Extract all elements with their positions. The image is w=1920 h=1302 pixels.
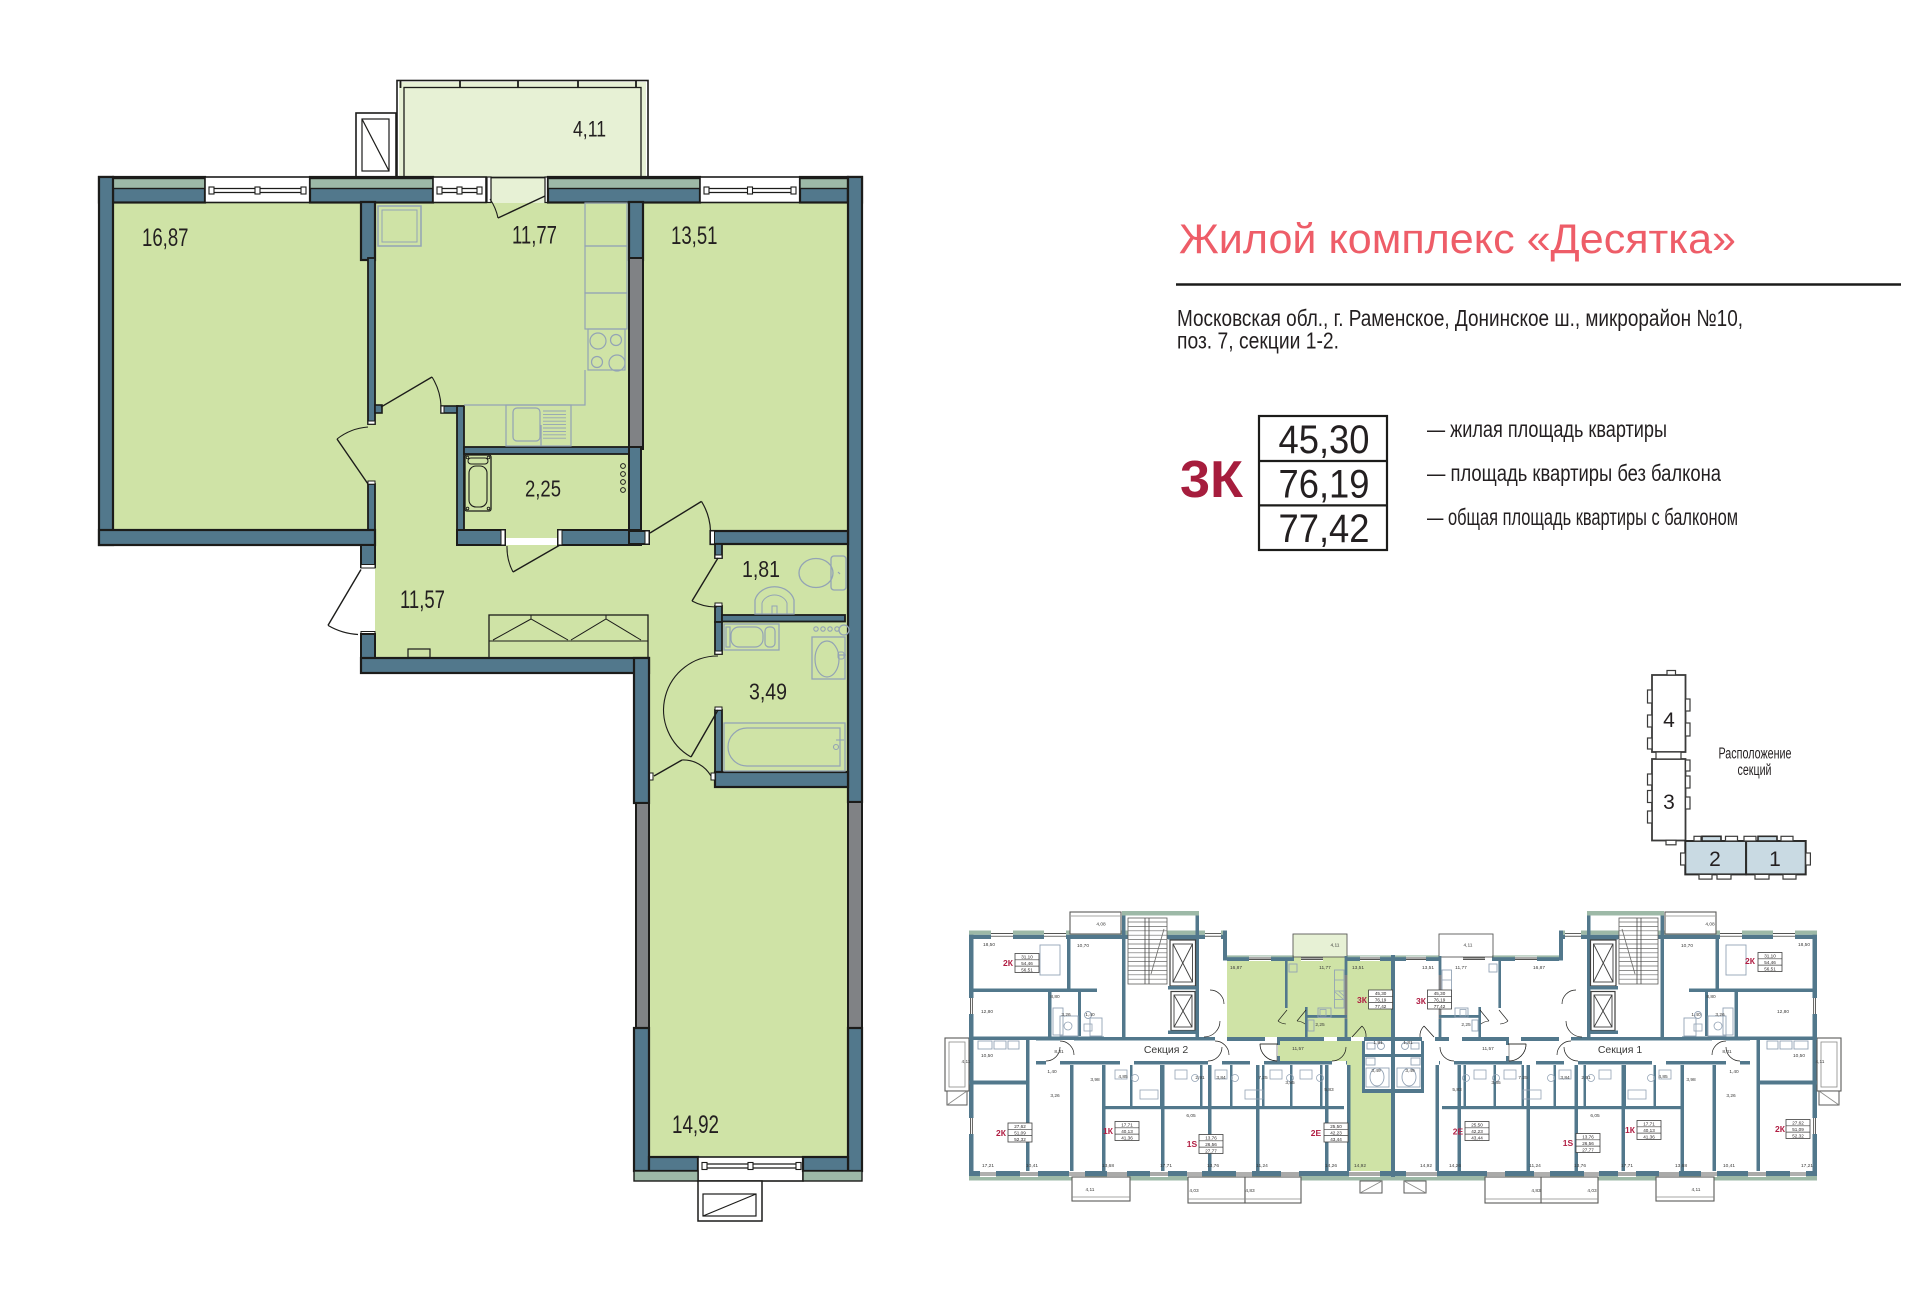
svg-text:52,32: 52,32 <box>1014 1137 1026 1142</box>
svg-text:17,71: 17,71 <box>1121 1123 1133 1128</box>
svg-text:2,25: 2,25 <box>1461 1022 1471 1028</box>
svg-text:31,10: 31,10 <box>1764 954 1776 959</box>
svg-text:17,21: 17,21 <box>982 1163 994 1169</box>
svg-text:45,30: 45,30 <box>1279 418 1370 462</box>
svg-text:1S: 1S <box>1187 1139 1198 1149</box>
svg-text:3,98: 3,98 <box>1090 1077 1100 1083</box>
svg-text:10,50: 10,50 <box>1793 1053 1805 1059</box>
svg-text:10,50: 10,50 <box>981 1053 993 1059</box>
svg-text:3,26: 3,26 <box>1061 1012 1071 1018</box>
svg-text:4,11: 4,11 <box>1331 943 1340 949</box>
svg-text:14,26: 14,26 <box>1325 1163 1337 1169</box>
svg-text:4,03: 4,03 <box>1189 1188 1199 1194</box>
svg-text:11,57: 11,57 <box>400 586 445 614</box>
svg-text:17,71: 17,71 <box>1160 1163 1172 1169</box>
svg-text:45,30: 45,30 <box>1434 991 1446 996</box>
svg-text:3,49: 3,49 <box>1405 1068 1415 1074</box>
svg-text:8,80: 8,80 <box>1706 994 1716 1000</box>
svg-text:4,11: 4,11 <box>1692 1187 1701 1193</box>
svg-text:51,09: 51,09 <box>1014 1131 1026 1136</box>
svg-text:76,19: 76,19 <box>1375 998 1387 1003</box>
svg-text:10,70: 10,70 <box>1077 943 1089 949</box>
svg-text:45,30: 45,30 <box>1375 991 1387 996</box>
svg-text:26,56: 26,56 <box>1205 1142 1217 1147</box>
svg-text:42,23: 42,23 <box>1330 1131 1342 1136</box>
svg-text:77,42: 77,42 <box>1434 1004 1446 1009</box>
svg-text:10,41: 10,41 <box>1723 1163 1735 1169</box>
svg-text:6,05: 6,05 <box>1186 1113 1196 1119</box>
svg-text:11,77: 11,77 <box>1455 965 1467 971</box>
svg-text:8,80: 8,80 <box>1050 994 1060 1000</box>
svg-text:— жилая площадь квартиры: — жилая площадь квартиры <box>1427 416 1667 442</box>
svg-text:1,81: 1,81 <box>742 556 780 582</box>
svg-text:76,19: 76,19 <box>1279 463 1370 507</box>
svg-text:13,76: 13,76 <box>1574 1163 1586 1169</box>
svg-text:27,77: 27,77 <box>1205 1148 1217 1153</box>
svg-text:42,23: 42,23 <box>1471 1129 1483 1134</box>
svg-text:41,36: 41,36 <box>1643 1134 1655 1139</box>
svg-text:3,26: 3,26 <box>1050 1093 1060 1099</box>
svg-text:2,91: 2,91 <box>1581 1075 1591 1081</box>
svg-text:13,76: 13,76 <box>1207 1163 1219 1169</box>
svg-text:14,92: 14,92 <box>1420 1163 1432 1169</box>
svg-text:40,13: 40,13 <box>1643 1128 1655 1133</box>
svg-text:13,76: 13,76 <box>1205 1136 1217 1141</box>
svg-text:11,57: 11,57 <box>1292 1046 1304 1052</box>
svg-text:77,42: 77,42 <box>1279 507 1370 551</box>
svg-text:Секция 2: Секция 2 <box>1144 1044 1188 1056</box>
svg-text:54,46: 54,46 <box>1021 961 1033 966</box>
svg-text:2,91: 2,91 <box>1195 1075 1205 1081</box>
svg-text:4,11: 4,11 <box>573 117 606 142</box>
svg-text:16,87: 16,87 <box>142 224 189 252</box>
svg-text:8,31: 8,31 <box>1722 1049 1732 1055</box>
svg-text:4,03: 4,03 <box>1587 1188 1597 1194</box>
svg-text:секций: секций <box>1738 762 1772 779</box>
svg-text:— площадь квартиры без балкона: — площадь квартиры без балкона <box>1427 460 1722 486</box>
svg-text:16,87: 16,87 <box>1230 965 1242 971</box>
svg-text:— общая площадь квартиры с бал: — общая площадь квартиры с балконом <box>1427 504 1738 530</box>
svg-text:11,57: 11,57 <box>1482 1046 1494 1052</box>
svg-text:2Е: 2Е <box>1453 1127 1464 1137</box>
svg-text:11,77: 11,77 <box>512 222 557 250</box>
svg-text:поз. 7, секции 1-2.: поз. 7, секции 1-2. <box>1177 328 1339 354</box>
svg-text:1,40: 1,40 <box>1729 1069 1739 1075</box>
svg-text:41,36: 41,36 <box>1121 1135 1133 1140</box>
svg-text:2К: 2К <box>1003 958 1014 968</box>
svg-text:18,50: 18,50 <box>983 942 995 948</box>
svg-text:76,19: 76,19 <box>1434 998 1446 1003</box>
svg-text:2,25: 2,25 <box>1315 1022 1325 1028</box>
svg-text:25,50: 25,50 <box>1330 1124 1342 1129</box>
svg-text:43,44: 43,44 <box>1330 1137 1342 1142</box>
svg-text:3,26: 3,26 <box>1726 1093 1736 1099</box>
svg-text:13,68: 13,68 <box>1102 1163 1114 1169</box>
svg-text:3,85: 3,85 <box>1491 1080 1501 1086</box>
svg-text:3,26: 3,26 <box>1715 1012 1725 1018</box>
svg-text:4,08: 4,08 <box>1096 922 1106 928</box>
svg-text:27,77: 27,77 <box>1582 1147 1594 1152</box>
svg-text:56,51: 56,51 <box>1764 966 1776 971</box>
svg-text:17,71: 17,71 <box>1643 1122 1655 1127</box>
svg-text:27,62: 27,62 <box>1792 1121 1804 1126</box>
svg-text:14,92: 14,92 <box>1354 1163 1366 1169</box>
svg-text:4,11: 4,11 <box>962 1059 971 1065</box>
svg-text:26,56: 26,56 <box>1582 1141 1594 1146</box>
svg-text:4,85: 4,85 <box>1658 1074 1668 1080</box>
svg-text:40,13: 40,13 <box>1121 1129 1133 1134</box>
svg-text:11,24: 11,24 <box>1529 1163 1541 1169</box>
svg-text:1: 1 <box>1769 848 1781 871</box>
svg-text:1S: 1S <box>1563 1138 1574 1148</box>
svg-text:3К: 3К <box>1416 996 1427 1006</box>
svg-text:4,11: 4,11 <box>1816 1059 1825 1065</box>
svg-text:14,92: 14,92 <box>672 1111 719 1139</box>
svg-text:13,51: 13,51 <box>671 222 718 250</box>
svg-text:7,25: 7,25 <box>1258 1075 1268 1081</box>
svg-text:13,51: 13,51 <box>1352 965 1364 971</box>
svg-text:10,70: 10,70 <box>1681 943 1693 949</box>
svg-text:3,85: 3,85 <box>1285 1080 1295 1086</box>
svg-text:11,77: 11,77 <box>1319 965 1331 971</box>
svg-text:1,81: 1,81 <box>1403 1040 1413 1046</box>
svg-text:12,80: 12,80 <box>981 1009 993 1015</box>
svg-text:1,40: 1,40 <box>1085 1012 1095 1018</box>
svg-text:2К: 2К <box>1745 956 1756 966</box>
svg-text:2К: 2К <box>996 1128 1007 1138</box>
svg-text:1,81: 1,81 <box>1373 1040 1383 1046</box>
svg-text:56,51: 56,51 <box>1021 967 1033 972</box>
svg-text:43,44: 43,44 <box>1471 1135 1483 1140</box>
svg-text:4,83: 4,83 <box>1531 1188 1541 1194</box>
svg-text:4,83: 4,83 <box>1245 1188 1255 1194</box>
svg-text:14,26: 14,26 <box>1449 1163 1461 1169</box>
svg-text:11,24: 11,24 <box>1256 1163 1268 1169</box>
svg-text:2,25: 2,25 <box>525 476 561 502</box>
svg-text:4,08: 4,08 <box>1705 922 1715 928</box>
svg-text:5,83: 5,83 <box>1324 1087 1334 1093</box>
svg-text:51,09: 51,09 <box>1792 1127 1804 1132</box>
svg-text:17,21: 17,21 <box>1801 1163 1813 1169</box>
svg-text:25,50: 25,50 <box>1471 1123 1483 1128</box>
svg-text:54,46: 54,46 <box>1764 960 1776 965</box>
svg-text:13,68: 13,68 <box>1675 1163 1687 1169</box>
svg-text:3К: 3К <box>1357 995 1368 1005</box>
svg-text:3,84: 3,84 <box>1560 1075 1570 1081</box>
svg-text:5,83: 5,83 <box>1452 1087 1462 1093</box>
svg-text:4,11: 4,11 <box>1086 1187 1095 1193</box>
svg-text:52,32: 52,32 <box>1792 1133 1804 1138</box>
svg-text:1К: 1К <box>1625 1125 1636 1135</box>
svg-text:2К: 2К <box>1775 1124 1786 1134</box>
svg-text:1,40: 1,40 <box>1691 1012 1701 1018</box>
svg-text:13,51: 13,51 <box>1422 965 1434 971</box>
svg-text:10,41: 10,41 <box>1026 1163 1038 1169</box>
svg-text:16,87: 16,87 <box>1533 965 1545 971</box>
svg-text:2Е: 2Е <box>1311 1128 1322 1138</box>
svg-text:8,31: 8,31 <box>1054 1049 1064 1055</box>
svg-text:Жилой комплекс «Десятка»: Жилой комплекс «Десятка» <box>1179 215 1736 262</box>
svg-text:Секция 1: Секция 1 <box>1598 1044 1642 1056</box>
svg-text:12,80: 12,80 <box>1777 1009 1789 1015</box>
svg-text:4: 4 <box>1663 709 1675 732</box>
svg-text:2: 2 <box>1709 848 1721 871</box>
svg-text:27,62: 27,62 <box>1014 1124 1026 1129</box>
svg-text:3К: 3К <box>1180 451 1243 509</box>
svg-text:13,76: 13,76 <box>1582 1135 1594 1140</box>
svg-text:17,71: 17,71 <box>1621 1163 1633 1169</box>
svg-text:1,40: 1,40 <box>1047 1069 1057 1075</box>
svg-text:4,85: 4,85 <box>1118 1074 1128 1080</box>
svg-text:Расположение: Расположение <box>1719 746 1792 763</box>
svg-text:3: 3 <box>1663 791 1675 814</box>
svg-text:3,49: 3,49 <box>749 679 787 705</box>
svg-text:6,05: 6,05 <box>1590 1113 1600 1119</box>
svg-text:3,84: 3,84 <box>1216 1075 1226 1081</box>
svg-text:3,98: 3,98 <box>1686 1077 1696 1083</box>
svg-text:1К: 1К <box>1103 1126 1114 1136</box>
svg-text:31,10: 31,10 <box>1021 955 1033 960</box>
svg-text:18,50: 18,50 <box>1798 942 1810 948</box>
svg-text:4,11: 4,11 <box>1464 943 1473 949</box>
svg-text:3,49: 3,49 <box>1371 1068 1381 1074</box>
svg-text:77,42: 77,42 <box>1375 1004 1387 1009</box>
svg-text:7,25: 7,25 <box>1518 1075 1528 1081</box>
